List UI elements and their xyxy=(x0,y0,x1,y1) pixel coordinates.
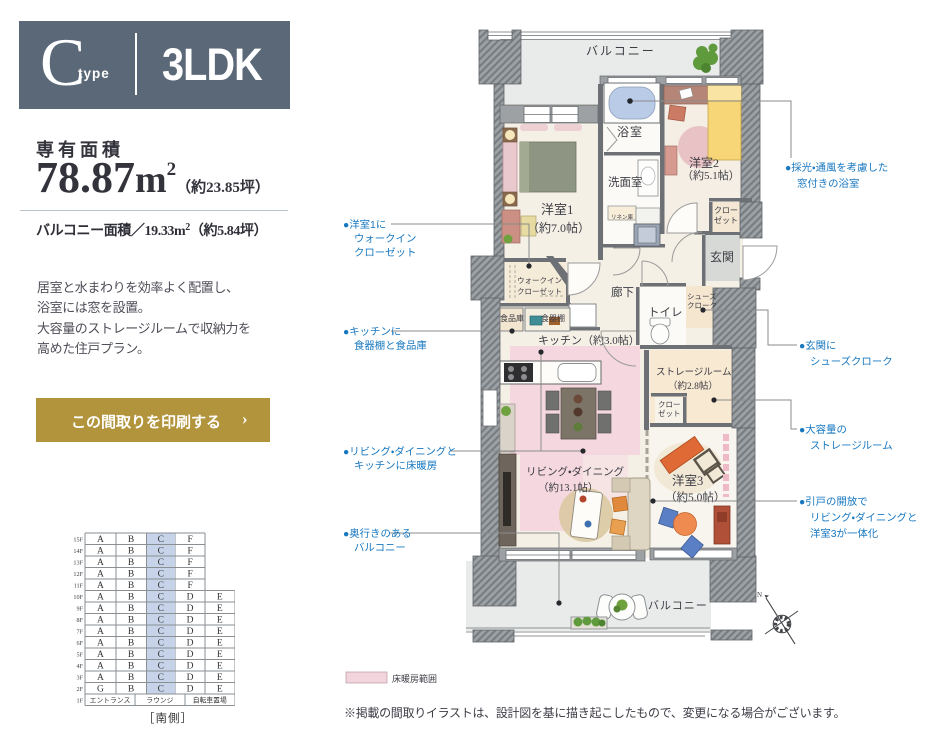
svg-text:ウォークイン: ウォークイン xyxy=(517,276,562,285)
svg-text:●奥行きのある: ●奥行きのある xyxy=(343,527,412,540)
svg-text:食器棚: 食器棚 xyxy=(541,313,565,323)
svg-text:洋室3: 洋室3 xyxy=(672,473,703,488)
svg-text:（約2.8帖）: （約2.8帖） xyxy=(668,380,718,392)
svg-text:バルコニー: バルコニー xyxy=(586,44,656,58)
svg-text:ウォークイン: ウォークイン xyxy=(354,233,416,245)
svg-text:リビング・ダイニング: リビング・ダイニング xyxy=(526,465,625,478)
svg-text:バルコニー: バルコニー xyxy=(648,599,708,612)
svg-text:●キッチンに: ●キッチンに xyxy=(343,326,401,338)
svg-text:（約5.1帖）: （約5.1帖） xyxy=(682,168,740,182)
svg-text:キッチン（約3.0帖）: キッチン（約3.0帖） xyxy=(538,333,640,347)
svg-text:シューズクローク: シューズクローク xyxy=(810,355,893,368)
svg-text:洋室1: 洋室1 xyxy=(541,202,574,217)
svg-text:シューズ: シューズ xyxy=(687,291,717,301)
svg-text:クローゼット: クローゼット xyxy=(354,247,416,259)
svg-text:●玄関に: ●玄関に xyxy=(799,339,836,352)
svg-text:バルコニー: バルコニー xyxy=(354,542,406,554)
svg-text:ストレージルーム: ストレージルーム xyxy=(810,440,893,452)
svg-text:●採光・通風を考慮した: ●採光・通風を考慮した xyxy=(785,161,888,174)
svg-text:（約7.0帖）: （約7.0帖） xyxy=(527,220,590,235)
svg-text:ゼット: ゼット xyxy=(714,215,738,225)
svg-text:●リビング・ダイニングと: ●リビング・ダイニングと xyxy=(343,445,457,458)
svg-text:クローゼット: クローゼット xyxy=(517,286,562,296)
svg-text:玄関: 玄関 xyxy=(710,250,734,264)
svg-text:（約5.0帖）: （約5.0帖） xyxy=(665,490,725,504)
svg-text:食器棚と食品庫: 食器棚と食品庫 xyxy=(354,339,427,352)
svg-text:クロー: クロー xyxy=(658,400,681,409)
svg-text:ストレージルーム: ストレージルーム xyxy=(656,367,732,378)
svg-text:洋室2: 洋室2 xyxy=(689,155,719,170)
svg-text:リビング・ダイニングと: リビング・ダイニングと xyxy=(810,511,917,524)
svg-text:※掲載の間取りイラストは、設計図を基に描き起こしたもので、変: ※掲載の間取りイラストは、設計図を基に描き起こしたもので、変更になる場合がござい… xyxy=(344,705,845,720)
svg-text:リネン庫: リネン庫 xyxy=(611,213,634,221)
svg-text:床暖房範囲: 床暖房範囲 xyxy=(392,673,437,684)
svg-text:洗面室: 洗面室 xyxy=(608,176,643,189)
svg-text:トイレ: トイレ xyxy=(648,307,683,319)
svg-text:食品庫: 食品庫 xyxy=(500,313,524,323)
svg-text:●引戸の開放で: ●引戸の開放で xyxy=(799,495,868,508)
svg-text:キッチンに床暖房: キッチンに床暖房 xyxy=(354,459,437,472)
svg-text:●大容量の: ●大容量の xyxy=(799,423,847,436)
svg-text:浴室: 浴室 xyxy=(617,125,643,139)
svg-text:洋室3が一体化: 洋室3が一体化 xyxy=(810,527,879,540)
svg-text:クロー: クロー xyxy=(714,206,738,215)
svg-text:廊下: 廊下 xyxy=(611,285,634,299)
svg-text:ゼット: ゼット xyxy=(658,408,681,418)
svg-text:窓付きの浴室: 窓付きの浴室 xyxy=(797,177,859,190)
svg-text:N: N xyxy=(757,591,762,599)
svg-text:●洋室1に: ●洋室1に xyxy=(343,218,386,231)
svg-text:（約13.1帖）: （約13.1帖） xyxy=(538,481,598,494)
